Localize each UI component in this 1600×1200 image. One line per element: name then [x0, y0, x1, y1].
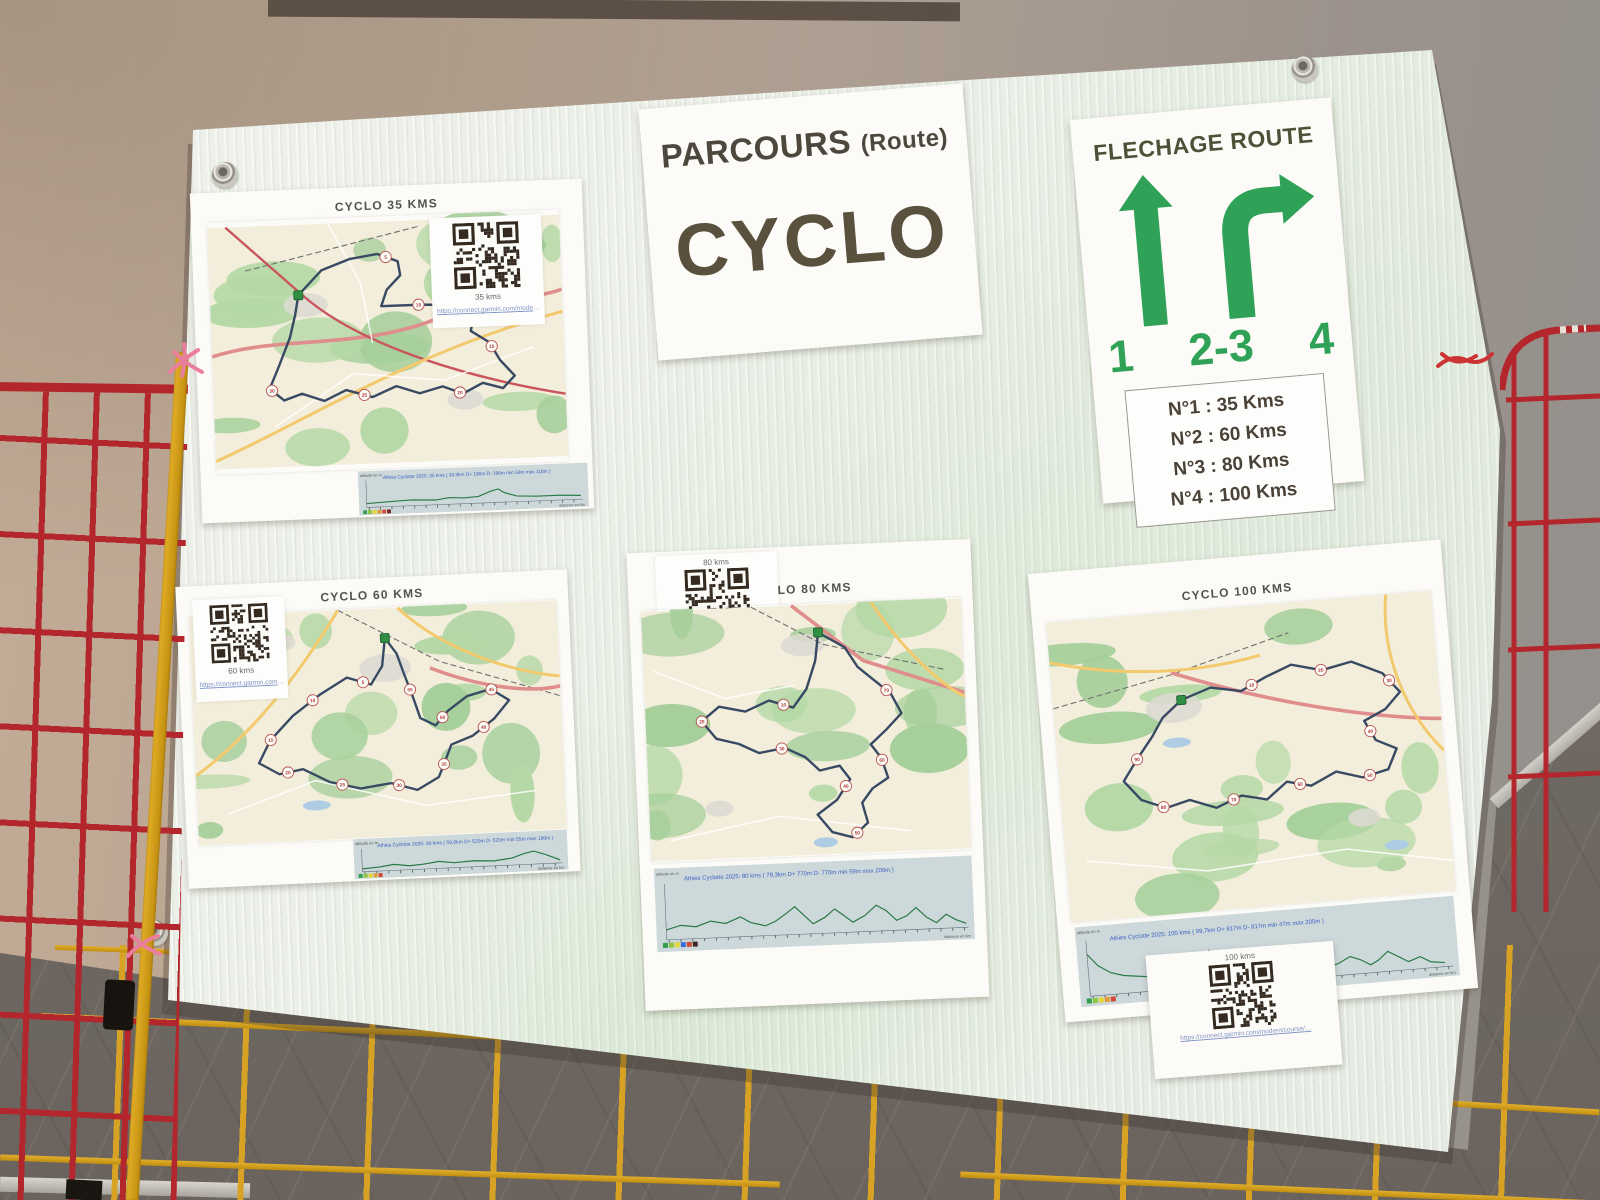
- svg-text:40: 40: [843, 784, 849, 790]
- qr-code-icon: [209, 603, 270, 664]
- svg-text:10: 10: [781, 702, 787, 708]
- elevation-profile-80km: altitude en m Athies Cyclotte 2025: 80 k…: [654, 855, 975, 952]
- svg-text:60: 60: [879, 758, 885, 764]
- map-sheet-80km: CYCLO 80 KMS 80 kms https://connect.garm…: [627, 539, 990, 1011]
- parcours-subtitle: (Route): [860, 124, 949, 158]
- svg-text:70: 70: [1231, 797, 1237, 803]
- red-wire-tie-icon: [1436, 344, 1496, 378]
- svg-text:70: 70: [884, 688, 890, 694]
- qr-code-icon: [452, 221, 520, 289]
- svg-text:15: 15: [489, 344, 495, 350]
- svg-text:distance en km: distance en km: [537, 865, 565, 871]
- svg-text:20: 20: [285, 770, 291, 776]
- svg-text:50: 50: [1367, 773, 1373, 779]
- svg-text:50: 50: [440, 715, 446, 721]
- map-sheet-60km: CYCLO 60 KMS 510152025303540455055 60 km…: [175, 569, 580, 888]
- qr-caption: 60 kms: [228, 666, 254, 676]
- qr-card-100km: 100 kms https://connect.garmin.com/moder…: [1145, 941, 1342, 1079]
- svg-text:25: 25: [362, 393, 368, 399]
- grommet: [212, 162, 238, 188]
- qr-code-icon: [1208, 961, 1277, 1030]
- pole-clamp: [103, 979, 136, 1031]
- pink-tie-icon: [124, 928, 168, 968]
- svg-text:20: 20: [699, 719, 705, 725]
- svg-text:altitude en m: altitude en m: [656, 871, 680, 877]
- flechage-sign: FLECHAGE ROUTE 1 2-3 4 N°1 : 35 Kms N°2 …: [1070, 97, 1365, 503]
- pink-tie-icon: [164, 342, 208, 392]
- svg-text:40: 40: [1368, 729, 1374, 735]
- qr-link: https://connect.garmin.com/modern/course…: [437, 304, 540, 315]
- qr-link: https://connect.garmin.com/modern/course…: [199, 678, 284, 689]
- svg-text:90: 90: [1134, 757, 1140, 763]
- grommet: [1292, 56, 1318, 82]
- map-sheet-35km: CYCLO 35 KMS 51015202530 35 kms https://…: [190, 179, 594, 524]
- parcours-title: PARCOURS: [659, 123, 852, 175]
- pole-clamp: [66, 1179, 103, 1200]
- svg-text:distance en km: distance en km: [559, 503, 585, 508]
- svg-text:20: 20: [457, 390, 463, 396]
- red-grid-fence-right: [1500, 312, 1600, 912]
- svg-text:30: 30: [779, 746, 785, 752]
- route-distance-legend: N°1 : 35 Kms N°2 : 60 Kms N°3 : 80 Kms N…: [1124, 373, 1335, 528]
- svg-text:20: 20: [1318, 668, 1324, 674]
- svg-text:40: 40: [481, 725, 487, 731]
- svg-text:50: 50: [855, 830, 861, 836]
- qr-panel-35km: 35 kms https://connect.garmin.com/modern…: [429, 214, 545, 328]
- svg-text:80: 80: [1161, 805, 1167, 811]
- arrow-label-4: 4: [1307, 315, 1336, 362]
- svg-text:45: 45: [489, 687, 495, 693]
- arrow-label-2-3: 2-3: [1187, 322, 1256, 372]
- svg-text:10: 10: [310, 698, 316, 704]
- elevation-profile-35km: altitude en m Athies Cyclotte 2025: 35 k…: [357, 463, 591, 516]
- parcours-sign: PARCOURS (Route) CYCLO: [638, 83, 982, 360]
- elevation-profile-60km: altitude en m Athies Cyclotte 2025: 60 k…: [353, 830, 569, 880]
- svg-text:30: 30: [1386, 678, 1392, 684]
- svg-text:60: 60: [1297, 781, 1303, 787]
- svg-text:55: 55: [407, 687, 413, 693]
- parcours-heading: PARCOURS (Route): [641, 113, 968, 177]
- straight-arrow-icon: [1116, 173, 1183, 328]
- svg-text:30: 30: [269, 389, 275, 395]
- route-arrows: [1098, 156, 1327, 332]
- route-map-80km: 10203040506070: [641, 597, 971, 862]
- arrow-label-1: 1: [1107, 333, 1136, 380]
- qr-caption: 35 kms: [475, 292, 501, 302]
- turn-right-arrow-icon: [1230, 171, 1324, 318]
- svg-text:10: 10: [1249, 683, 1255, 689]
- svg-text:altitude en m: altitude en m: [360, 473, 382, 478]
- qr-link: https://connect.garmin.com/modern/course…: [1180, 1025, 1312, 1042]
- svg-text:30: 30: [396, 783, 402, 789]
- qr-caption: 80 kms: [703, 557, 729, 567]
- svg-text:35: 35: [441, 762, 447, 768]
- route-map-100km: 102030405060708090: [1046, 590, 1456, 922]
- svg-text:15: 15: [268, 738, 274, 744]
- qr-panel-60km: 60 kms https://connect.garmin.com/modern…: [192, 596, 289, 702]
- photo-scene: PARCOURS (Route) CYCLO FLECHAGE ROUTE 1 …: [0, 0, 1600, 1200]
- svg-text:25: 25: [340, 782, 346, 788]
- cyclo-title: CYCLO: [647, 185, 978, 296]
- qr-caption: 100 kms: [1224, 951, 1255, 962]
- svg-text:10: 10: [416, 302, 422, 308]
- svg-text:altitude en m: altitude en m: [355, 840, 379, 846]
